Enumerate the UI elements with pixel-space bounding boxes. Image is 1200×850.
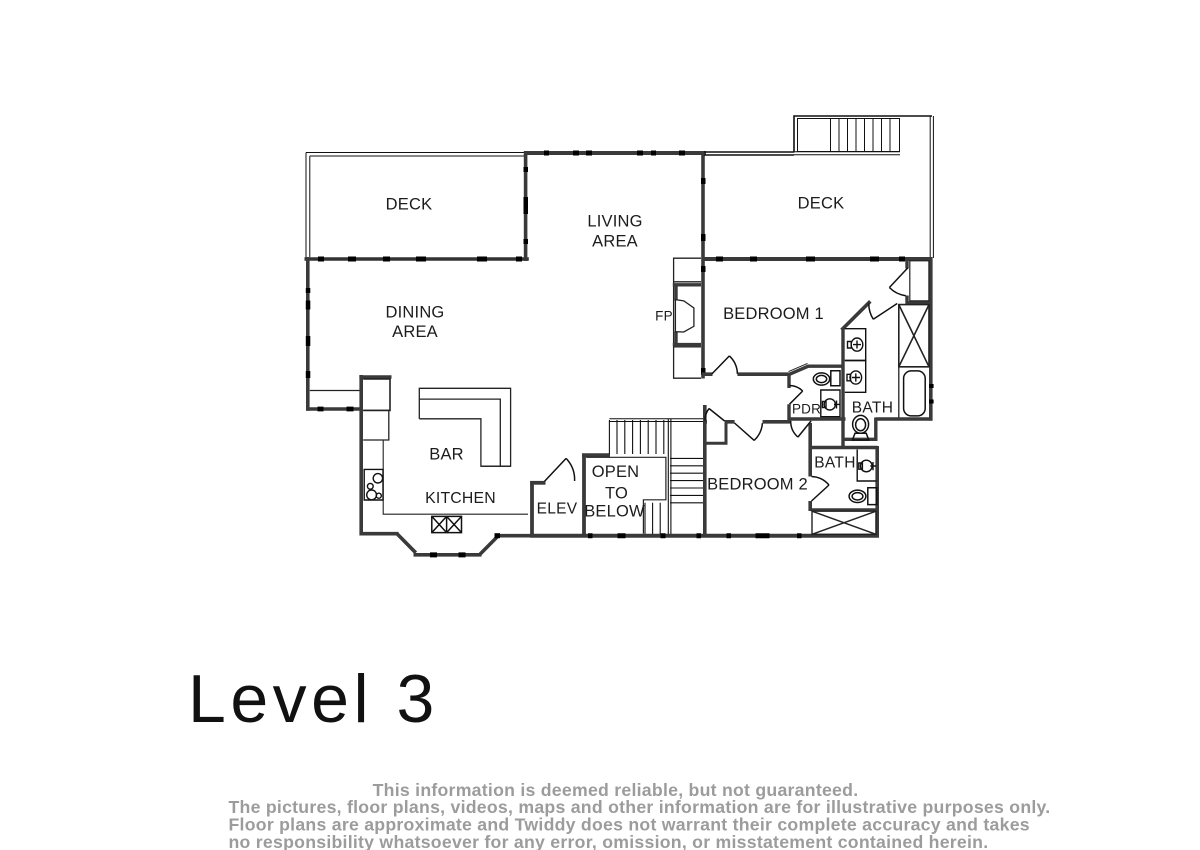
svg-text:AREA: AREA: [392, 323, 438, 341]
svg-text:PDR: PDR: [792, 402, 821, 417]
svg-text:BEDROOM 1: BEDROOM 1: [723, 305, 824, 323]
svg-text:KITCHEN: KITCHEN: [425, 490, 496, 507]
svg-text:BATH: BATH: [852, 400, 893, 417]
svg-text:BAR: BAR: [429, 446, 464, 464]
svg-text:TO: TO: [605, 485, 628, 503]
svg-text:BEDROOM 2: BEDROOM 2: [707, 476, 808, 494]
svg-text:BATH: BATH: [814, 455, 855, 472]
svg-text:LIVING: LIVING: [587, 213, 642, 231]
svg-text:DINING: DINING: [386, 304, 445, 322]
svg-text:FP: FP: [655, 309, 673, 324]
svg-text:DECK: DECK: [798, 195, 845, 213]
svg-text:AREA: AREA: [592, 233, 638, 251]
svg-text:OPEN: OPEN: [592, 463, 640, 481]
svg-text:BELOW: BELOW: [584, 503, 645, 521]
svg-text:no responsibility whatsoever f: no responsibility whatsoever for any err…: [229, 832, 989, 850]
svg-text:ELEV: ELEV: [537, 501, 578, 518]
svg-text:DECK: DECK: [386, 196, 433, 214]
svg-text:Level 3: Level 3: [188, 661, 439, 737]
